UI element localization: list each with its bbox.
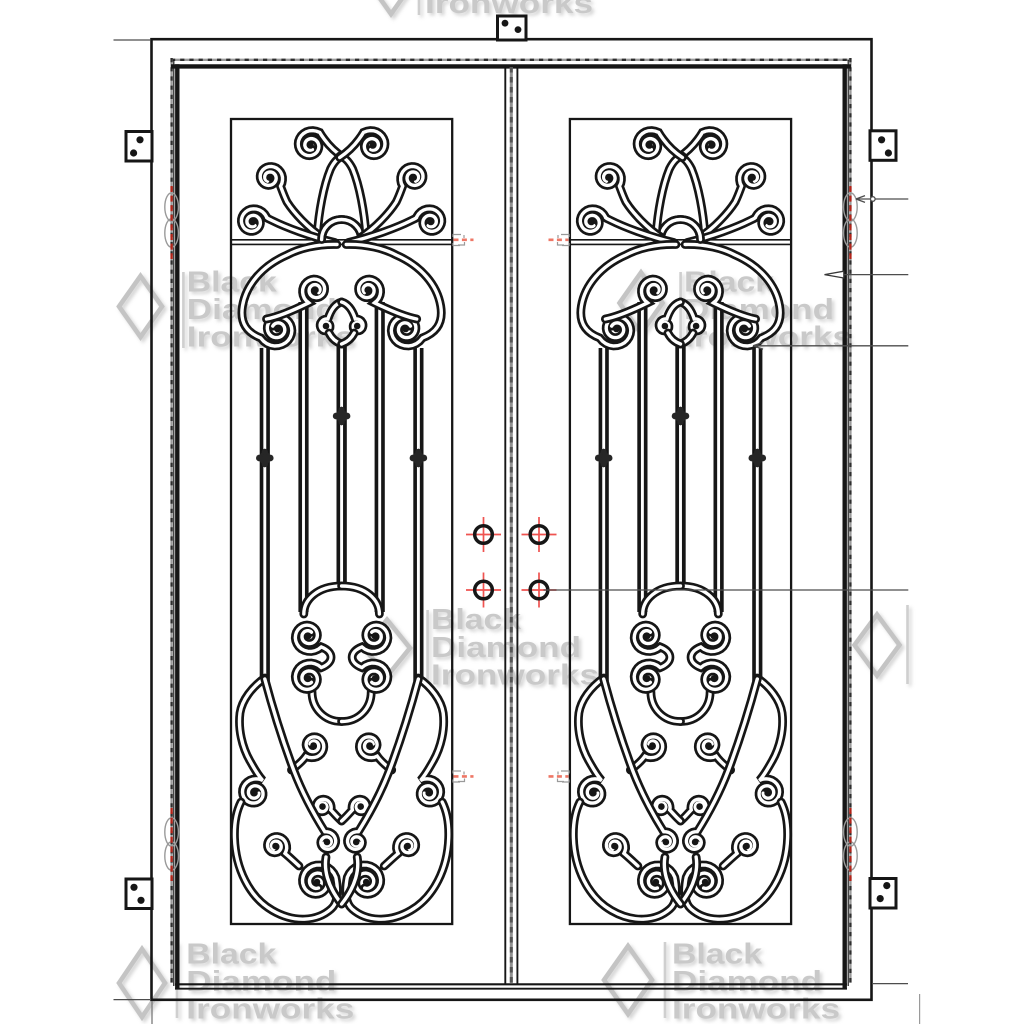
svg-text:Ironworks: Ironworks: [431, 659, 599, 691]
svg-text:Ironworks: Ironworks: [672, 994, 840, 1024]
svg-text:Ironworks: Ironworks: [186, 994, 354, 1024]
